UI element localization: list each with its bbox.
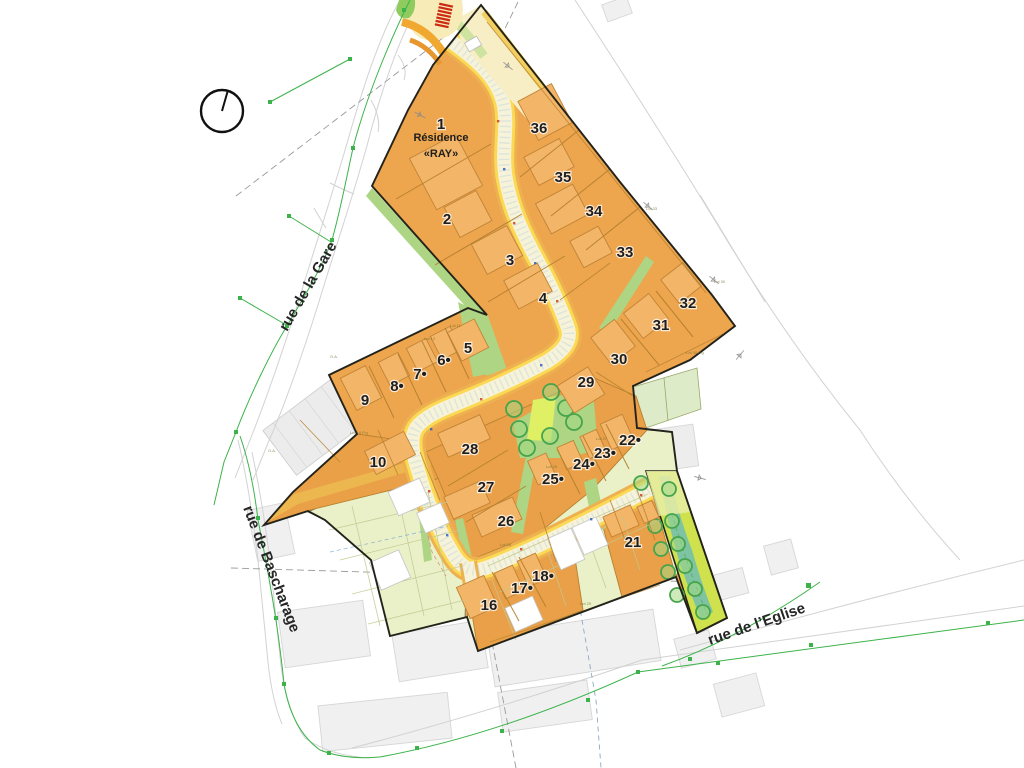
svg-text:26: 26 [498,513,515,530]
svg-text:8•: 8• [390,378,404,395]
svg-text:4: 4 [539,290,548,307]
svg-text:«RAY»: «RAY» [424,148,458,160]
svg-text:6•: 6• [437,352,451,369]
svg-text:21: 21 [625,534,642,551]
svg-text:17•: 17• [511,580,533,597]
svg-text:30: 30 [611,351,628,368]
svg-text:Lot 29: Lot 29 [580,601,592,606]
svg-text:25•: 25• [542,471,564,488]
svg-text:2: 2 [443,211,451,228]
svg-text:O.A.: O.A. [330,354,338,359]
svg-text:1: 1 [437,116,445,133]
svg-text:Lot 12: Lot 12 [424,336,436,341]
svg-text:34: 34 [586,203,603,220]
svg-text:Lot 27: Lot 27 [596,436,608,441]
svg-text:28: 28 [462,441,479,458]
svg-text:23•: 23• [594,445,616,462]
svg-text:7•: 7• [413,366,427,383]
svg-text:Lot 18 P.g: Lot 18 P.g [350,430,368,435]
svg-text:24•: 24• [573,456,595,473]
svg-text:Lot 28: Lot 28 [500,542,512,547]
svg-text:18•: 18• [532,568,554,585]
svg-text:29: 29 [578,374,595,391]
svg-text:3: 3 [506,252,514,269]
svg-text:O.A.: O.A. [268,448,276,453]
svg-text:Lot 11: Lot 11 [450,323,462,328]
svg-text:22•: 22• [619,432,641,449]
svg-text:Lot 30: Lot 30 [714,279,726,284]
svg-text:Résidence: Résidence [413,132,468,144]
svg-text:32: 32 [680,295,697,312]
svg-text:10: 10 [370,454,387,471]
svg-text:5: 5 [464,340,472,357]
svg-text:16: 16 [481,597,498,614]
svg-text:Lot 30 P.g: Lot 30 P.g [686,350,704,355]
svg-text:27: 27 [478,479,495,496]
svg-text:Lot 33: Lot 33 [646,206,658,211]
svg-text:Lot 26: Lot 26 [546,464,558,469]
svg-text:33: 33 [617,244,634,261]
svg-text:9: 9 [361,392,369,409]
svg-text:35: 35 [555,169,572,186]
svg-text:31: 31 [653,317,670,334]
svg-text:36: 36 [531,120,548,137]
